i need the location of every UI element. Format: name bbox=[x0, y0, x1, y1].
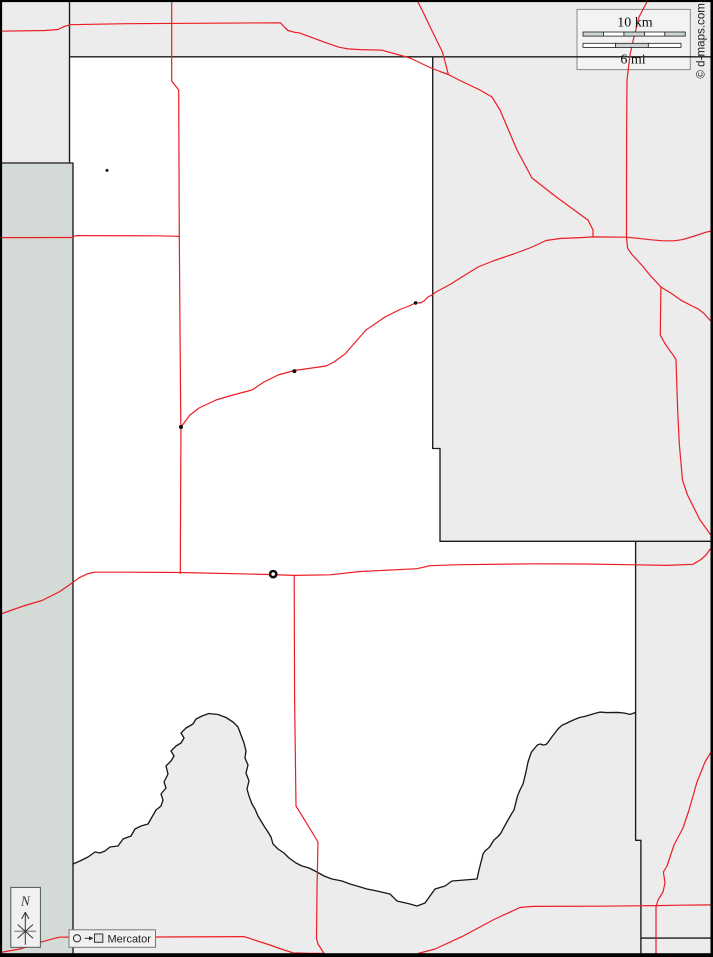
svg-text:© d-maps.com: © d-maps.com bbox=[695, 3, 708, 79]
svg-text:6 mi: 6 mi bbox=[620, 53, 645, 68]
svg-text:10 km: 10 km bbox=[617, 16, 653, 31]
svg-text:N: N bbox=[20, 894, 31, 909]
svg-text:Mercator: Mercator bbox=[108, 934, 152, 946]
